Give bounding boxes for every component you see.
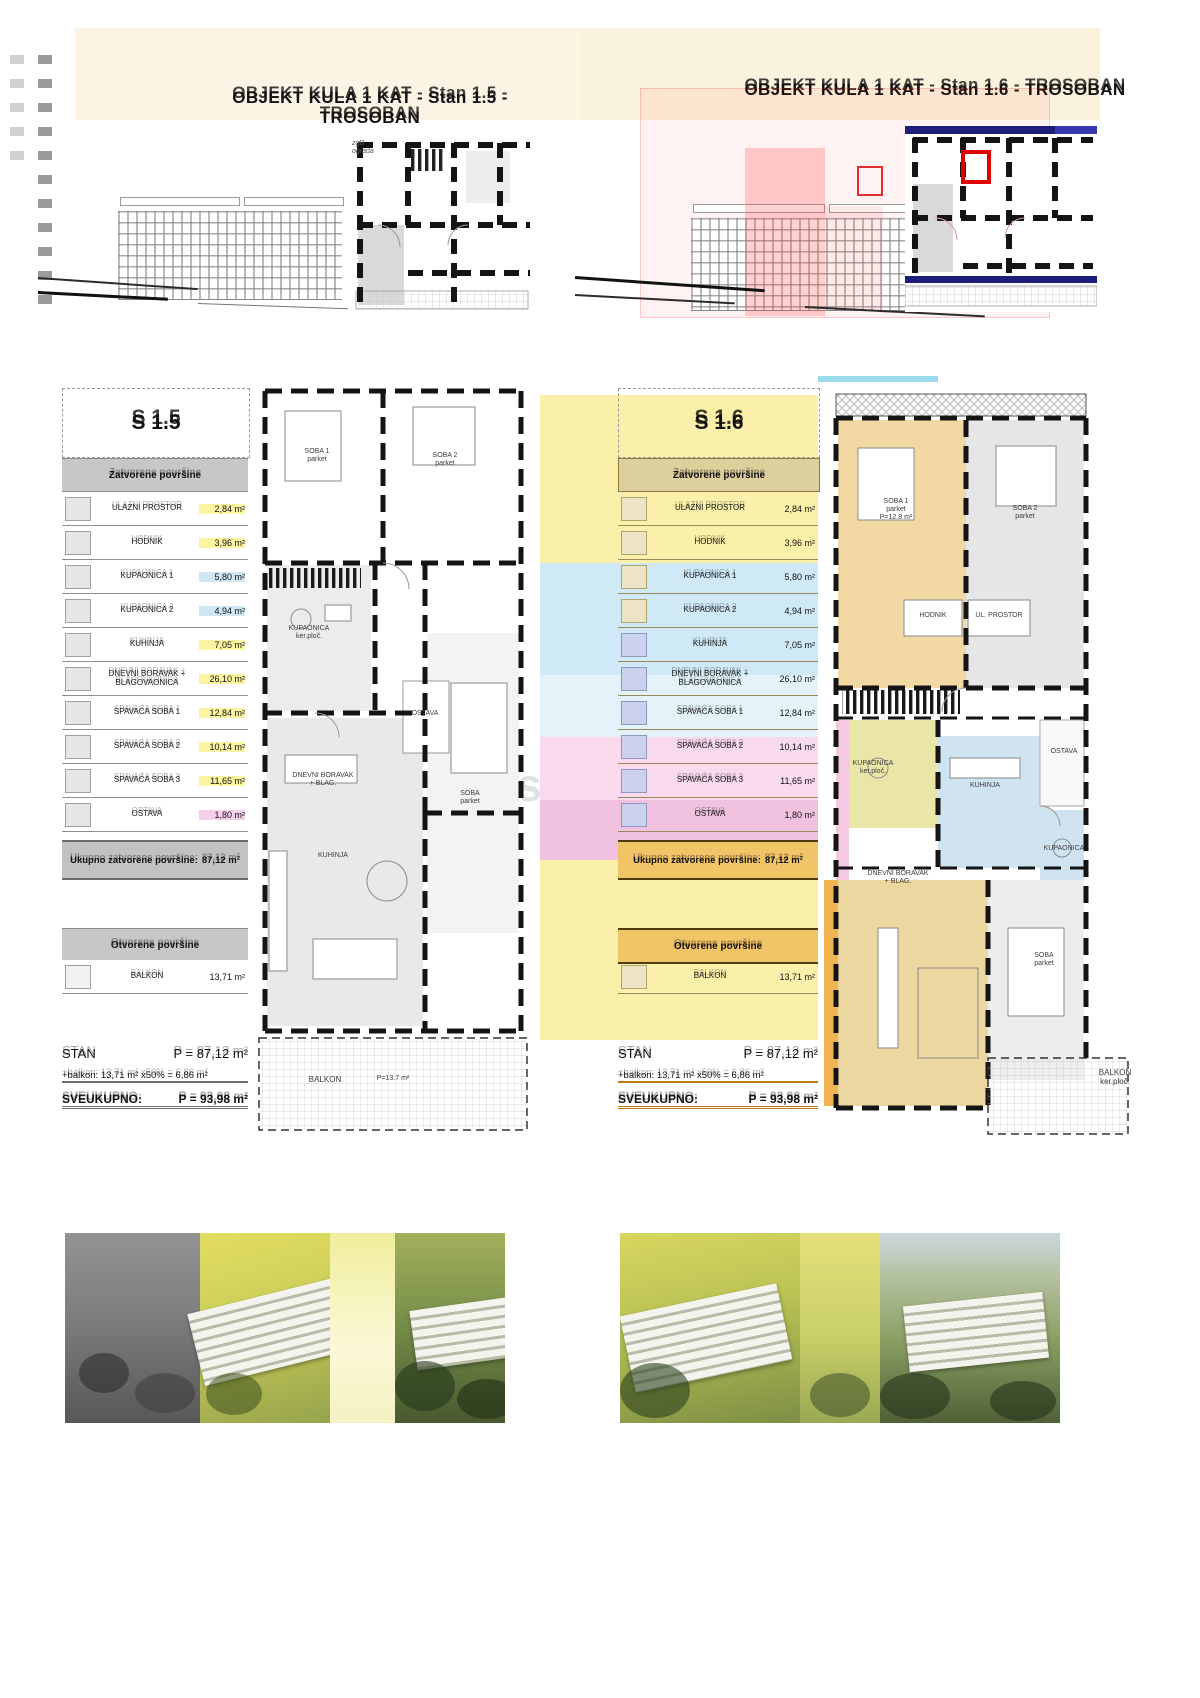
- room-thumbnail: [65, 769, 91, 793]
- room-label-soba3: SOBA parket: [448, 790, 492, 806]
- closed-total-left: Ukupno zatvorene površine:87,12 m²: [62, 840, 248, 880]
- summary-left: STAN P = 87,12 m² +balkon: 13,71 m² x50%…: [62, 1035, 248, 1109]
- room-label-kupaonica: KUPAONICA ker.ploč.: [845, 760, 901, 776]
- unit-id-left: S 1.5: [62, 388, 250, 458]
- sveukupno-label: SVEUKUPNO:: [62, 1092, 142, 1106]
- room-thumbnail: [621, 633, 647, 657]
- elevation-drawing-left: [78, 165, 346, 313]
- sveukupno-value: P = 93,98 m²: [749, 1092, 819, 1106]
- sveukupno-value: P = 93,98 m²: [179, 1092, 249, 1106]
- room-thumbnail: [65, 803, 91, 827]
- room-thumbnail: [621, 497, 647, 521]
- room-thumbnail: [65, 565, 91, 589]
- open-areas-table-right: BALKON13,71 m²: [618, 960, 818, 994]
- page-title-left: OBJEKT KULA 1 KAT - Stan 1.5 - TROSOBAN: [185, 88, 555, 128]
- photo-strip-left: [65, 1233, 505, 1423]
- elevation-drawing-right: [645, 148, 945, 320]
- table-row: KUPAONICA 24,94 m²: [618, 594, 818, 628]
- closed-areas-table-left: ULAZNI PROSTOR2,84 m² HODNIK3,96 m² KUPA…: [62, 492, 248, 832]
- table-row: KUHINJA7,05 m²: [62, 628, 248, 662]
- key-plan-note: zgB ograda: [352, 140, 374, 155]
- floor-plan-right: [818, 368, 1140, 1138]
- room-thumbnail: [621, 531, 647, 555]
- stan-value: P = 87,12 m²: [173, 1046, 248, 1061]
- room-label-kupaonica2: KUPAONICA: [1040, 845, 1088, 853]
- room-thumbnail: [65, 531, 91, 555]
- room-label-hodnik: HODNIK: [908, 612, 958, 620]
- table-row: HODNIK3,96 m²: [62, 526, 248, 560]
- room-label-balkon: BALKON ker.ploč.: [1090, 1068, 1140, 1086]
- table-row: DNEVNI BORAVAK + BLAGOVAONICA26,10 m²: [618, 662, 818, 696]
- room-label-kupaonica: KUPAONICA ker.ploč.: [282, 625, 336, 641]
- room-label-dnevni: DNEVNI BORAVAK + BLAG.: [860, 870, 936, 886]
- room-thumbnail: [621, 735, 647, 759]
- edge-ticks-2: [10, 55, 24, 165]
- room-thumbnail: [621, 965, 647, 989]
- unit-id-right: S 1.6: [618, 388, 820, 458]
- room-label-soba2: SOBA 2 parket: [998, 505, 1052, 521]
- room-thumbnail: [65, 599, 91, 623]
- sveukupno-label: SVEUKUPNO:: [618, 1092, 698, 1106]
- table-row: HODNIK3,96 m²: [618, 526, 818, 560]
- room-label-balkon-area: P=13.7 m²: [368, 1075, 418, 1083]
- table-row: KUPAONICA 24,94 m²: [62, 594, 248, 628]
- table-row: DNEVNI BORAVAK + BLAGOVAONICA26,10 m²: [62, 662, 248, 696]
- table-row: SPAVAĆA SOBA 112,84 m²: [618, 696, 818, 730]
- room-thumbnail: [65, 633, 91, 657]
- room-label-soba3: SOBA parket: [1022, 952, 1066, 968]
- table-row: KUHINJA7,05 m²: [618, 628, 818, 662]
- room-thumbnail: [621, 565, 647, 589]
- room-label-ostava: OSTAVA: [1044, 748, 1084, 756]
- floorplan-document-page: OBJEKT KULA 1 KAT - Stan 1.5 - TROSOBAN …: [0, 0, 1200, 1698]
- room-label-dnevni: DNEVNI BORAVAK + BLAG.: [288, 772, 358, 788]
- table-row: OSTAVA1,80 m²: [62, 798, 248, 832]
- table-row: SPAVAĆA SOBA 210,14 m²: [618, 730, 818, 764]
- stan-value: P = 87,12 m²: [743, 1046, 818, 1061]
- room-thumbnail: [65, 667, 91, 691]
- table-row: SPAVAĆA SOBA 210,14 m²: [62, 730, 248, 764]
- table-row: SPAVAĆA SOBA 311,65 m²: [618, 764, 818, 798]
- balkon-calc: +balkon: 13,71 m² x50% = 6,86 m²: [618, 1070, 764, 1081]
- open-areas-header-left: Otvorene površine: [62, 928, 248, 962]
- stan-label: STAN: [62, 1046, 96, 1061]
- room-thumbnail: [621, 599, 647, 623]
- room-label-ulaz: UL. PROSTOR: [972, 612, 1026, 620]
- room-label-kuhinja: KUHINJA: [960, 782, 1010, 790]
- room-label-ostava: OSTAVA: [405, 710, 445, 718]
- room-label-soba2: SOBA 2 parket: [420, 452, 470, 468]
- key-plan-left: [348, 133, 534, 315]
- table-row: SPAVAĆA SOBA 112,84 m²: [62, 696, 248, 730]
- room-label-balkon: BALKON: [300, 1075, 350, 1084]
- table-row: ULAZNI PROSTOR2,84 m²: [62, 492, 248, 526]
- open-areas-header-right: Otvorene površine: [618, 928, 818, 964]
- closed-total-right: Ukupno zatvorene površine:87,12 m²: [618, 840, 818, 880]
- floor-plan-left: [255, 383, 531, 1138]
- room-label-kuhinja: KUHINJA: [310, 852, 356, 860]
- table-row: BALKON13,71 m²: [62, 960, 248, 994]
- room-thumbnail: [65, 497, 91, 521]
- key-plan-right: [905, 126, 1097, 312]
- closed-areas-table-right: ULAZNI PROSTOR2,84 m² HODNIK3,96 m² KUPA…: [618, 492, 818, 832]
- room-thumbnail: [621, 667, 647, 691]
- room-thumbnail: [65, 735, 91, 759]
- room-label-soba1: SOBA 1 parket P=12.8 m²: [868, 498, 924, 522]
- room-label-soba1: SOBA 1 parket: [292, 448, 342, 464]
- open-areas-table-left: BALKON13,71 m²: [62, 960, 248, 994]
- closed-areas-header-left: Zatvorene površine: [62, 458, 248, 492]
- table-row: BALKON13,71 m²: [618, 960, 818, 994]
- table-row: ULAZNI PROSTOR2,84 m²: [618, 492, 818, 526]
- room-thumbnail: [621, 701, 647, 725]
- room-thumbnail: [65, 701, 91, 725]
- photo-strip-right: [620, 1233, 1060, 1423]
- balkon-calc: +balkon: 13,71 m² x50% = 6,86 m²: [62, 1070, 208, 1081]
- table-row: KUPAONICA 15,80 m²: [62, 560, 248, 594]
- room-thumbnail: [621, 769, 647, 793]
- table-row: SPAVAĆA SOBA 311,65 m²: [62, 764, 248, 798]
- summary-right: STAN P = 87,12 m² +balkon: 13,71 m² x50%…: [618, 1035, 818, 1109]
- room-thumbnail: [621, 803, 647, 827]
- edge-ticks: [38, 55, 52, 305]
- stan-label: STAN: [618, 1046, 652, 1061]
- room-thumbnail: [65, 965, 91, 989]
- closed-areas-header-right: Zatvorene površine: [618, 458, 820, 492]
- table-row: KUPAONICA 15,80 m²: [618, 560, 818, 594]
- table-row: OSTAVA1,80 m²: [618, 798, 818, 832]
